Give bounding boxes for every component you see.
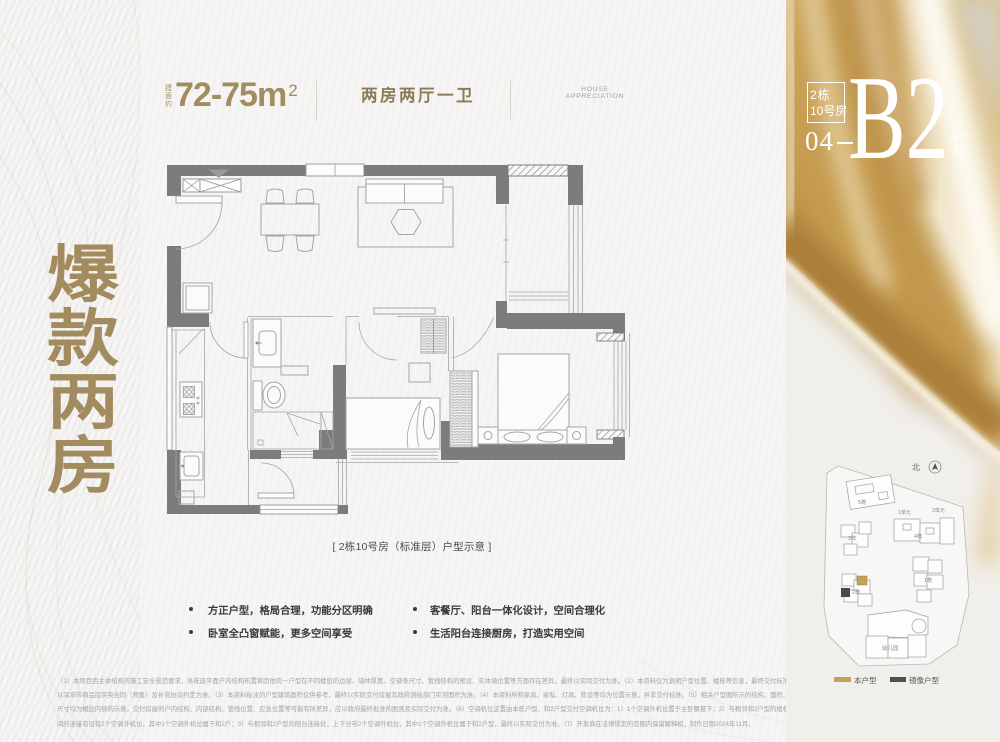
svg-text:北: 北	[912, 463, 920, 472]
svg-text:3栋: 3栋	[848, 534, 857, 542]
svg-text:4栋: 4栋	[914, 532, 923, 540]
svg-text:1单元: 1单元	[898, 509, 911, 516]
svg-text:1栋: 1栋	[924, 576, 933, 584]
svg-text:5栋: 5栋	[858, 498, 867, 506]
svg-text:镜像户型: 镜像户型	[909, 675, 939, 685]
svg-text:幼儿园: 幼儿园	[882, 644, 899, 652]
svg-text:本户型: 本户型	[854, 675, 877, 685]
svg-text:2单元: 2单元	[932, 507, 945, 514]
svg-text:2栋: 2栋	[852, 588, 861, 596]
